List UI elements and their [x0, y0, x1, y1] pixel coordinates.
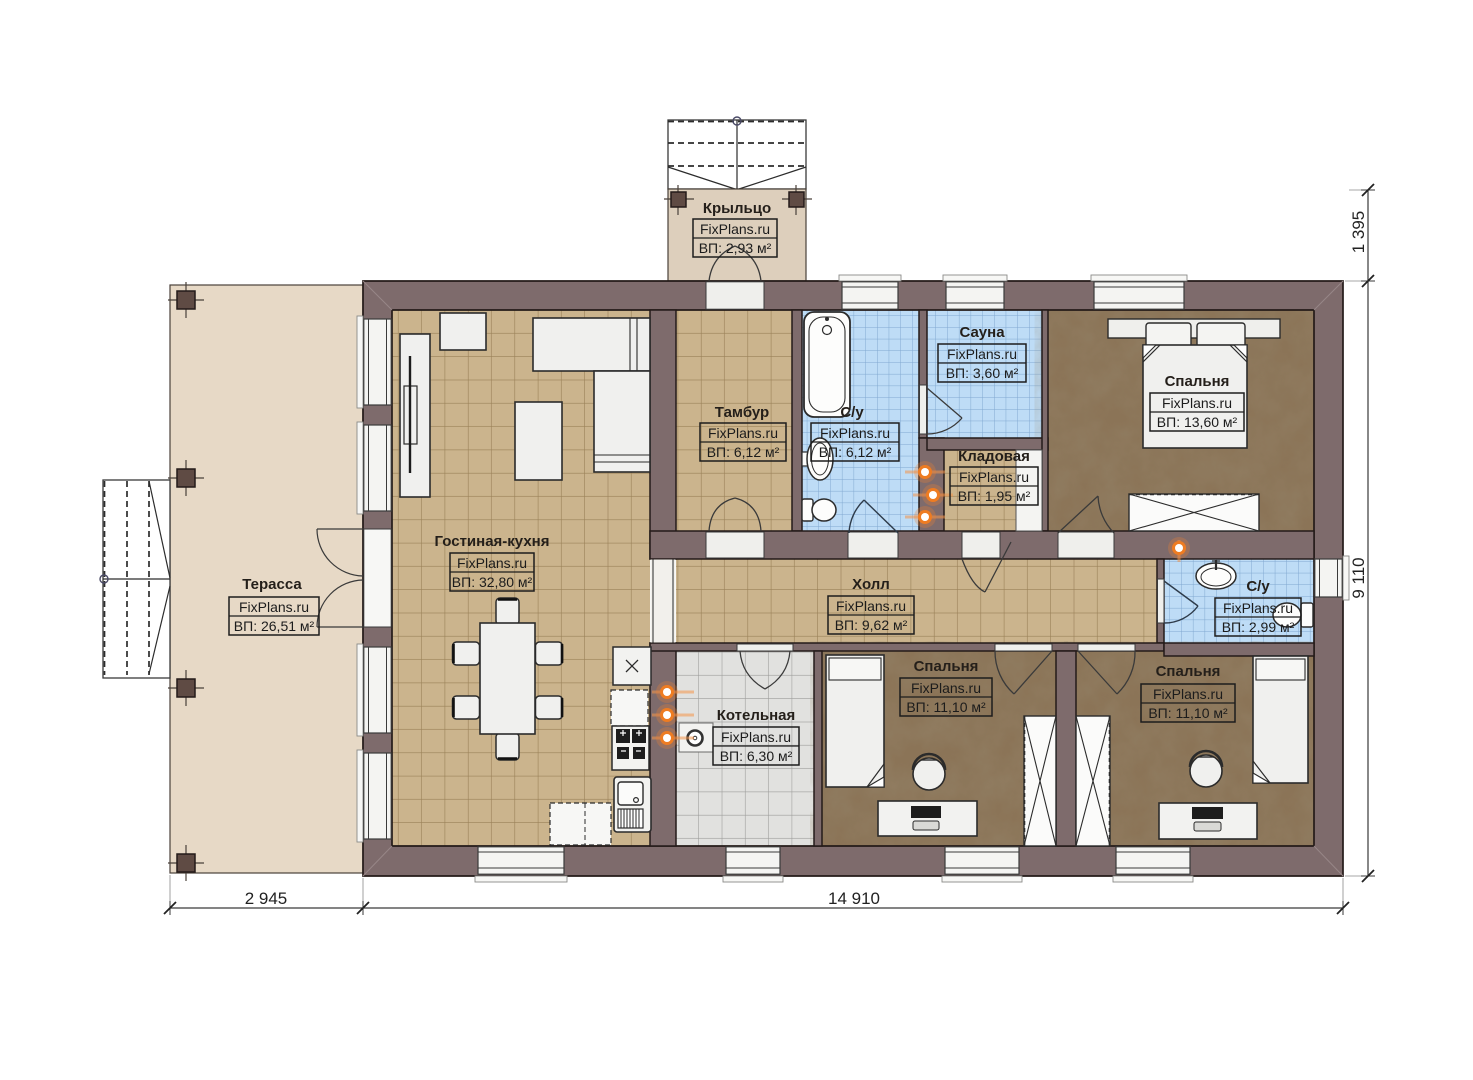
- svg-text:Тамбур: Тамбур: [715, 404, 769, 421]
- svg-text:2 945: 2 945: [245, 889, 288, 908]
- svg-text:ВП: 11,10 м²: ВП: 11,10 м²: [906, 699, 986, 715]
- svg-text:FixPlans.ru: FixPlans.ru: [700, 221, 770, 237]
- svg-text:Крыльцо: Крыльцо: [703, 200, 771, 217]
- svg-text:ВП: 6,12 м²: ВП: 6,12 м²: [707, 444, 780, 460]
- svg-text:9 110: 9 110: [1349, 557, 1368, 598]
- svg-text:FixPlans.ru: FixPlans.ru: [457, 555, 527, 571]
- svg-text:FixPlans.ru: FixPlans.ru: [836, 598, 906, 614]
- svg-text:С/у: С/у: [1246, 578, 1270, 595]
- svg-text:Котельная: Котельная: [717, 707, 796, 724]
- svg-text:Гостиная-кухня: Гостиная-кухня: [435, 533, 550, 550]
- svg-text:FixPlans.ru: FixPlans.ru: [959, 469, 1029, 485]
- svg-text:Спальня: Спальня: [1165, 373, 1230, 390]
- svg-text:ВП: 26,51 м²: ВП: 26,51 м²: [234, 618, 315, 634]
- svg-text:Сауна: Сауна: [959, 324, 1005, 341]
- svg-text:ВП: 3,60 м²: ВП: 3,60 м²: [946, 365, 1019, 381]
- svg-text:ВП: 1,95 м²: ВП: 1,95 м²: [958, 488, 1031, 504]
- svg-text:FixPlans.ru: FixPlans.ru: [721, 729, 791, 745]
- svg-text:14 910: 14 910: [828, 889, 880, 908]
- svg-text:FixPlans.ru: FixPlans.ru: [820, 425, 890, 441]
- svg-text:Спальня: Спальня: [1156, 663, 1221, 680]
- svg-text:ВП: 6,30 м²: ВП: 6,30 м²: [720, 748, 793, 764]
- svg-text:С/у: С/у: [840, 404, 864, 421]
- svg-text:ВП: 32,80 м²: ВП: 32,80 м²: [452, 574, 533, 590]
- svg-text:Терасса: Терасса: [242, 576, 302, 593]
- svg-text:FixPlans.ru: FixPlans.ru: [947, 346, 1017, 362]
- svg-text:FixPlans.ru: FixPlans.ru: [708, 425, 778, 441]
- svg-text:1 395: 1 395: [1349, 211, 1368, 254]
- svg-text:Спальня: Спальня: [914, 658, 979, 675]
- svg-text:ВП: 2,93 м²: ВП: 2,93 м²: [699, 240, 772, 256]
- svg-text:ВП: 2,99 м²: ВП: 2,99 м²: [1222, 619, 1295, 635]
- svg-text:FixPlans.ru: FixPlans.ru: [1153, 686, 1223, 702]
- svg-text:FixPlans.ru: FixPlans.ru: [239, 599, 309, 615]
- svg-text:FixPlans.ru: FixPlans.ru: [1223, 600, 1293, 616]
- svg-text:FixPlans.ru: FixPlans.ru: [911, 680, 981, 696]
- svg-text:FixPlans.ru: FixPlans.ru: [1162, 395, 1232, 411]
- svg-text:ВП: 6,12 м²: ВП: 6,12 м²: [819, 444, 892, 460]
- svg-text:ВП: 13,60 м²: ВП: 13,60 м²: [1157, 414, 1238, 430]
- svg-text:ВП: 9,62 м²: ВП: 9,62 м²: [835, 617, 908, 633]
- svg-text:ВП: 11,10 м²: ВП: 11,10 м²: [1148, 705, 1228, 721]
- svg-text:Кладовая: Кладовая: [958, 448, 1030, 465]
- svg-text:Холл: Холл: [852, 576, 890, 593]
